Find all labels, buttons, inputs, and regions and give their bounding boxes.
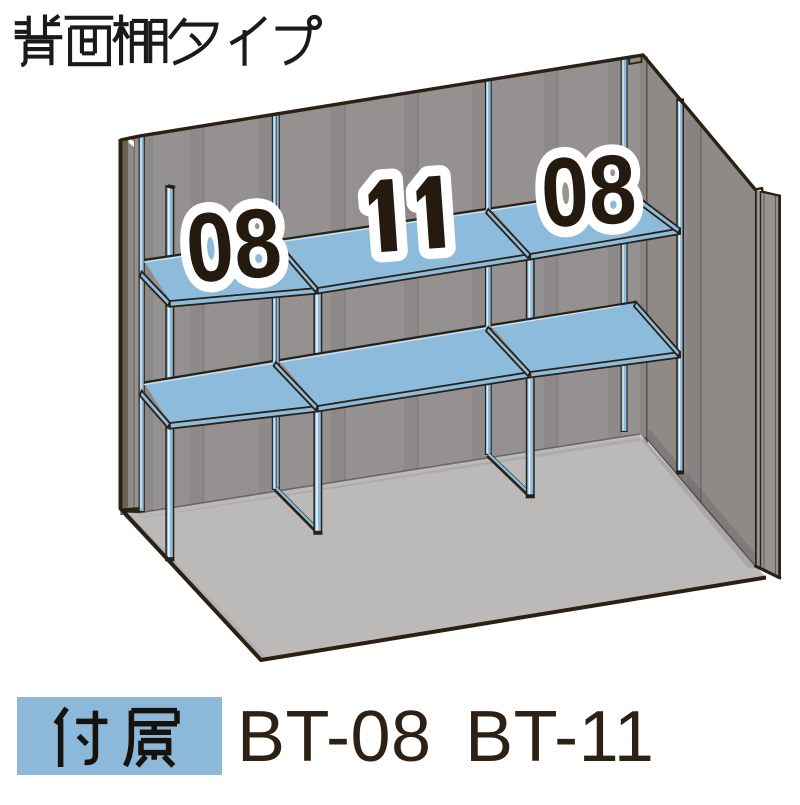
svg-text:08: 08 bbox=[182, 188, 285, 304]
svg-text:08: 08 bbox=[538, 135, 638, 249]
svg-text:BT-08 BT-11: BT-08 BT-11 bbox=[237, 697, 654, 777]
